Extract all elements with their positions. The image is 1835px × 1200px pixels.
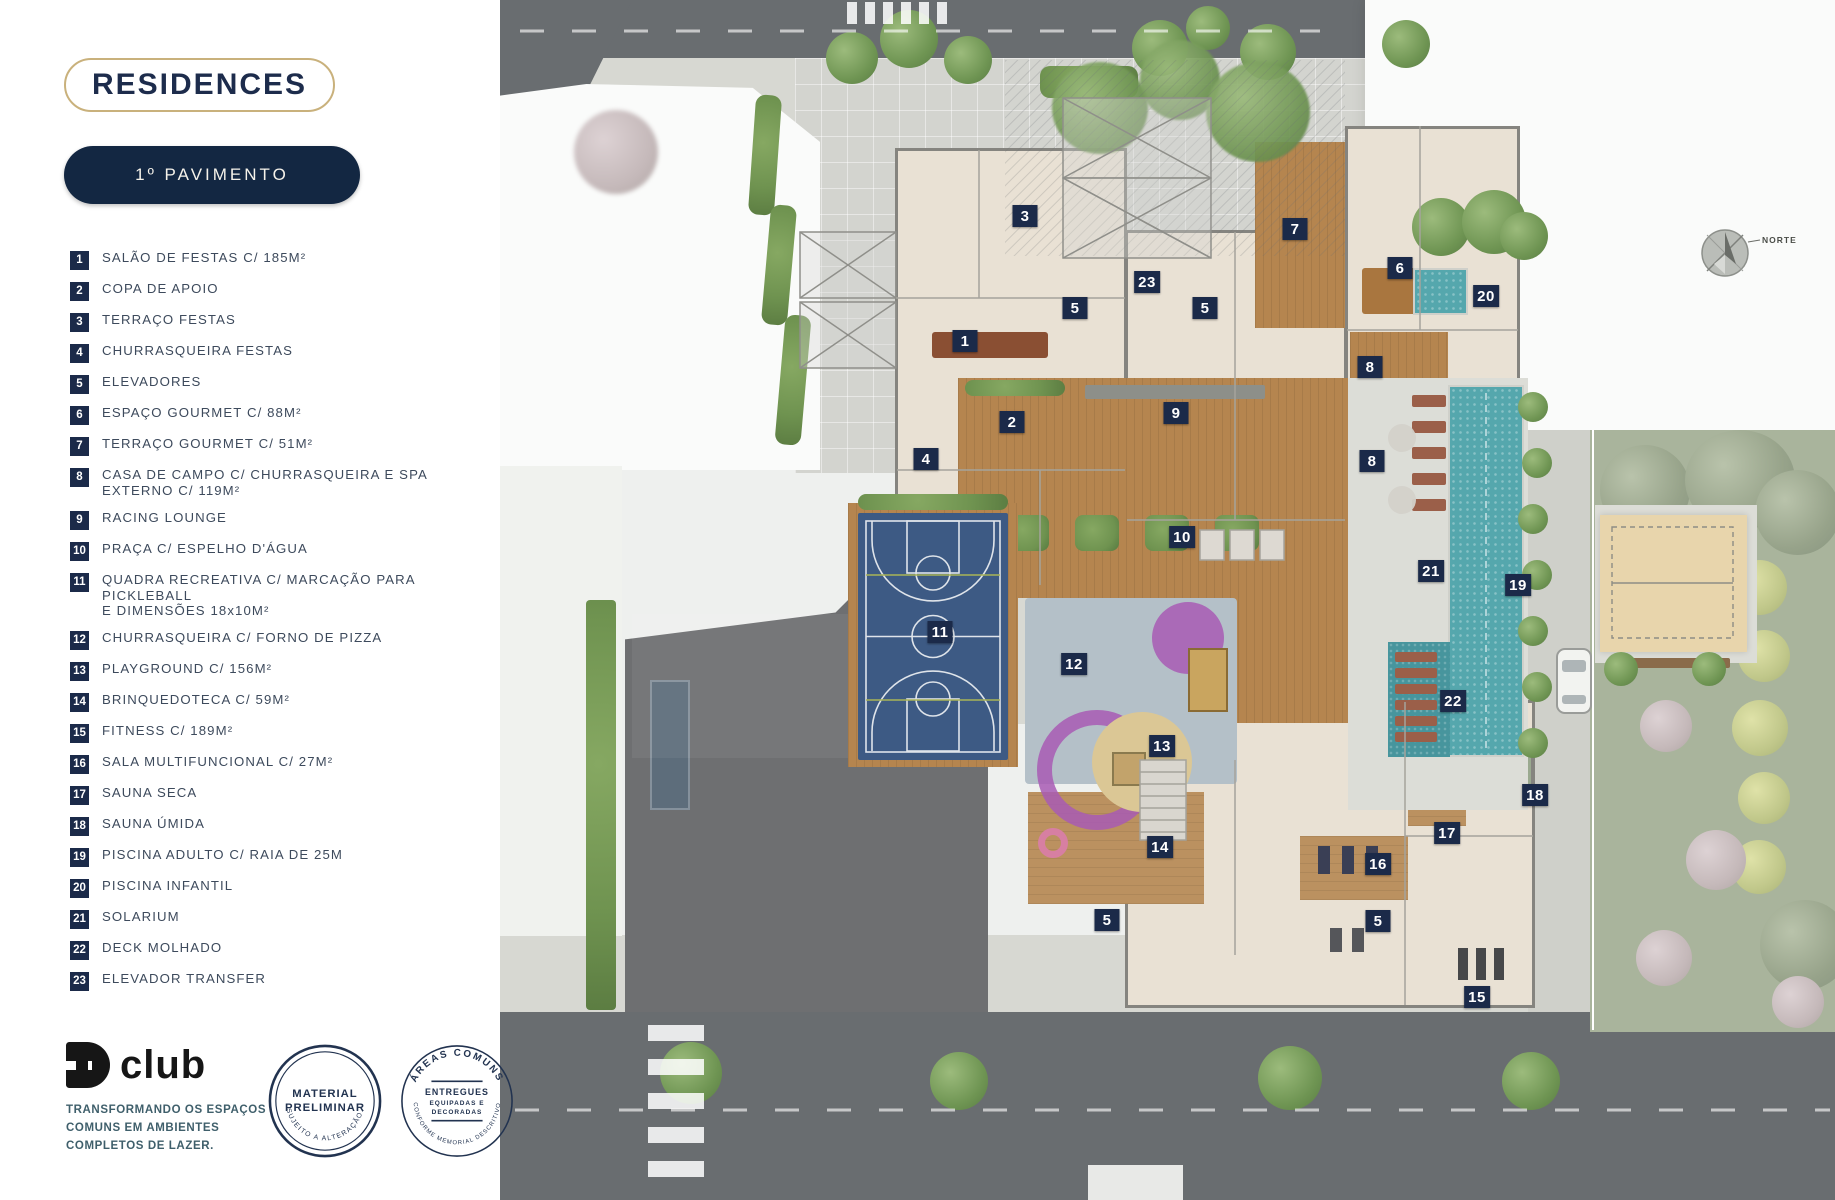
plan-marker-17: 17 bbox=[1434, 822, 1460, 844]
stamp2-center2: EQUIPADAS E bbox=[429, 1100, 484, 1107]
plan-marker-14: 14 bbox=[1147, 836, 1173, 858]
legend-item-3: 3TERRAÇO FESTAS bbox=[70, 312, 498, 332]
stamp1-line2: PRELIMINAR bbox=[285, 1102, 365, 1114]
legend-item-6: 6ESPAÇO GOURMET C/ 88M² bbox=[70, 405, 498, 425]
legend-item-number: 16 bbox=[70, 755, 89, 774]
plan-marker-16: 16 bbox=[1365, 853, 1391, 875]
legend-item-20: 20PISCINA INFANTIL bbox=[70, 878, 498, 898]
legend-item-label: QUADRA RECREATIVA C/ MARCAÇÃO PARA PICKL… bbox=[102, 572, 498, 620]
site-plan: NORTE 1234555567889101112131415161718192… bbox=[500, 0, 1835, 1200]
legend-item-7: 7TERRAÇO GOURMET C/ 51M² bbox=[70, 436, 498, 456]
legend-item-number: 11 bbox=[70, 573, 89, 592]
legend-item-label: BRINQUEDOTECA C/ 59M² bbox=[102, 692, 290, 708]
stamp1-line1: MATERIAL bbox=[292, 1088, 357, 1100]
plan-marker-12: 12 bbox=[1061, 653, 1087, 675]
legend-item-label: RACING LOUNGE bbox=[102, 510, 227, 526]
brochure-page: RESIDENCES 1º PAVIMENTO 1SALÃO DE FESTAS… bbox=[0, 0, 1835, 1200]
club-tagline: TRANSFORMANDO OS ESPAÇOS COMUNS EM AMBIE… bbox=[66, 1102, 281, 1155]
club-footer: club TRANSFORMANDO OS ESPAÇOS COMUNS EM … bbox=[66, 1042, 281, 1155]
legend-item-label: ELEVADOR TRANSFER bbox=[102, 971, 266, 987]
legend-item-number: 7 bbox=[70, 437, 89, 456]
legend-item-10: 10PRAÇA C/ ESPELHO D'ÁGUA bbox=[70, 541, 498, 561]
legend-item-label: SAUNA ÚMIDA bbox=[102, 816, 205, 832]
legend-item-number: 1 bbox=[70, 251, 89, 270]
plan-marker-6: 6 bbox=[1388, 257, 1413, 279]
legend-item-5: 5ELEVADORES bbox=[70, 374, 498, 394]
legend-item-label: SOLARIUM bbox=[102, 909, 180, 925]
legend-item-label: ELEVADORES bbox=[102, 374, 201, 390]
legend-item-21: 21SOLARIUM bbox=[70, 909, 498, 929]
legend-item-11: 11QUADRA RECREATIVA C/ MARCAÇÃO PARA PIC… bbox=[70, 572, 498, 620]
plan-linework: NORTE bbox=[500, 0, 1835, 1200]
legend-item-9: 9RACING LOUNGE bbox=[70, 510, 498, 530]
club-d-icon bbox=[66, 1042, 110, 1088]
compass-label: NORTE bbox=[1762, 235, 1797, 245]
stamp2-center1: ENTREGUES bbox=[425, 1087, 489, 1097]
stamp2-arc-top: ÁREAS COMUNS bbox=[408, 1048, 506, 1085]
legend-item-14: 14BRINQUEDOTECA C/ 59M² bbox=[70, 692, 498, 712]
legend-item-13: 13PLAYGROUND C/ 156M² bbox=[70, 661, 498, 681]
legend-item-label: ESPAÇO GOURMET C/ 88M² bbox=[102, 405, 302, 421]
legend-item-number: 10 bbox=[70, 542, 89, 561]
plan-marker-20: 20 bbox=[1473, 285, 1499, 307]
legend-item-number: 9 bbox=[70, 511, 89, 530]
plan-marker-13: 13 bbox=[1149, 735, 1175, 757]
brand-logo: RESIDENCES bbox=[64, 58, 335, 112]
plan-marker-15: 15 bbox=[1464, 986, 1490, 1008]
legend-item-19: 19PISCINA ADULTO C/ RAIA DE 25M bbox=[70, 847, 498, 867]
svg-text:ÁREAS COMUNS: ÁREAS COMUNS bbox=[408, 1048, 506, 1085]
legend-item-number: 21 bbox=[70, 910, 89, 929]
stamp-material-preliminar: MATERIAL PRELIMINAR SUJEITO A ALTERAÇÃO. bbox=[266, 1042, 384, 1165]
legend-item-label: PLAYGROUND C/ 156M² bbox=[102, 661, 272, 677]
legend-item-label: SAUNA SECA bbox=[102, 785, 197, 801]
legend-item-number: 20 bbox=[70, 879, 89, 898]
legend-item-number: 22 bbox=[70, 941, 89, 960]
legend-item-number: 15 bbox=[70, 724, 89, 743]
plan-marker-10: 10 bbox=[1169, 526, 1195, 548]
legend-item-17: 17SAUNA SECA bbox=[70, 785, 498, 805]
plan-marker-2: 2 bbox=[1000, 411, 1025, 433]
legend-item-label: DECK MOLHADO bbox=[102, 940, 222, 956]
info-panel: RESIDENCES 1º PAVIMENTO 1SALÃO DE FESTAS… bbox=[0, 0, 500, 1200]
legend-item-number: 14 bbox=[70, 693, 89, 712]
plan-marker-21: 21 bbox=[1418, 560, 1444, 582]
legend-item-number: 19 bbox=[70, 848, 89, 867]
legend-item-22: 22DECK MOLHADO bbox=[70, 940, 498, 960]
plan-marker-3: 3 bbox=[1013, 205, 1038, 227]
plan-marker-7: 7 bbox=[1283, 218, 1308, 240]
legend-item-1: 1SALÃO DE FESTAS C/ 185M² bbox=[70, 250, 498, 270]
legend-item-label: FITNESS C/ 189M² bbox=[102, 723, 233, 739]
legend-item-number: 18 bbox=[70, 817, 89, 836]
legend-item-12: 12CHURRASQUEIRA C/ FORNO DE PIZZA bbox=[70, 630, 498, 650]
club-logo: club bbox=[66, 1042, 281, 1088]
legend-item-number: 6 bbox=[70, 406, 89, 425]
legend-item-label: PISCINA ADULTO C/ RAIA DE 25M bbox=[102, 847, 343, 863]
club-logo-text: club bbox=[120, 1045, 206, 1085]
legend-item-4: 4CHURRASQUEIRA FESTAS bbox=[70, 343, 498, 363]
amenities-legend: 1SALÃO DE FESTAS C/ 185M²2COPA DE APOIO3… bbox=[70, 250, 498, 1002]
legend-item-number: 8 bbox=[70, 468, 89, 487]
plan-marker-5: 5 bbox=[1063, 297, 1088, 319]
plan-marker-23: 23 bbox=[1134, 271, 1160, 293]
legend-item-label: CHURRASQUEIRA C/ FORNO DE PIZZA bbox=[102, 630, 382, 646]
legend-item-number: 3 bbox=[70, 313, 89, 332]
legend-item-number: 2 bbox=[70, 282, 89, 301]
stamp-areas-comuns: ÁREAS COMUNS ENTREGUES EQUIPADAS E DECOR… bbox=[398, 1042, 516, 1165]
legend-item-18: 18SAUNA ÚMIDA bbox=[70, 816, 498, 836]
legend-item-label: COPA DE APOIO bbox=[102, 281, 219, 297]
legend-item-16: 16SALA MULTIFUNCIONAL C/ 27M² bbox=[70, 754, 498, 774]
plan-marker-19: 19 bbox=[1505, 574, 1531, 596]
legend-item-label: SALÃO DE FESTAS C/ 185M² bbox=[102, 250, 306, 266]
legend-item-8: 8CASA DE CAMPO C/ CHURRASQUEIRA E SPA EX… bbox=[70, 467, 498, 499]
legend-item-label: SALA MULTIFUNCIONAL C/ 27M² bbox=[102, 754, 333, 770]
legend-item-label: PRAÇA C/ ESPELHO D'ÁGUA bbox=[102, 541, 308, 557]
plan-marker-5: 5 bbox=[1095, 909, 1120, 931]
plan-marker-22: 22 bbox=[1440, 690, 1466, 712]
plan-marker-8: 8 bbox=[1358, 356, 1383, 378]
legend-item-label: CHURRASQUEIRA FESTAS bbox=[102, 343, 293, 359]
legend-item-label: CASA DE CAMPO C/ CHURRASQUEIRA E SPA EXT… bbox=[102, 467, 498, 499]
compass-icon: NORTE bbox=[1702, 230, 1797, 276]
plan-marker-5: 5 bbox=[1193, 297, 1218, 319]
plan-marker-8: 8 bbox=[1360, 450, 1385, 472]
plan-marker-18: 18 bbox=[1522, 784, 1548, 806]
floor-selector-button[interactable]: 1º PAVIMENTO bbox=[64, 146, 360, 204]
legend-item-number: 17 bbox=[70, 786, 89, 805]
stamp2-center3: DECORADAS bbox=[432, 1109, 483, 1116]
legend-item-15: 15FITNESS C/ 189M² bbox=[70, 723, 498, 743]
plan-marker-1: 1 bbox=[953, 330, 978, 352]
legend-item-2: 2COPA DE APOIO bbox=[70, 281, 498, 301]
legend-item-number: 4 bbox=[70, 344, 89, 363]
legend-item-number: 5 bbox=[70, 375, 89, 394]
legend-item-number: 12 bbox=[70, 631, 89, 650]
legend-item-number: 23 bbox=[70, 972, 89, 991]
legend-item-label: PISCINA INFANTIL bbox=[102, 878, 233, 894]
plan-marker-11: 11 bbox=[928, 621, 953, 643]
legend-item-23: 23ELEVADOR TRANSFER bbox=[70, 971, 498, 991]
plan-marker-9: 9 bbox=[1164, 402, 1189, 424]
plan-marker-5: 5 bbox=[1366, 910, 1391, 932]
legend-item-number: 13 bbox=[70, 662, 89, 681]
legend-item-label: TERRAÇO FESTAS bbox=[102, 312, 236, 328]
legend-item-label: TERRAÇO GOURMET C/ 51M² bbox=[102, 436, 313, 452]
plan-marker-4: 4 bbox=[914, 448, 939, 470]
